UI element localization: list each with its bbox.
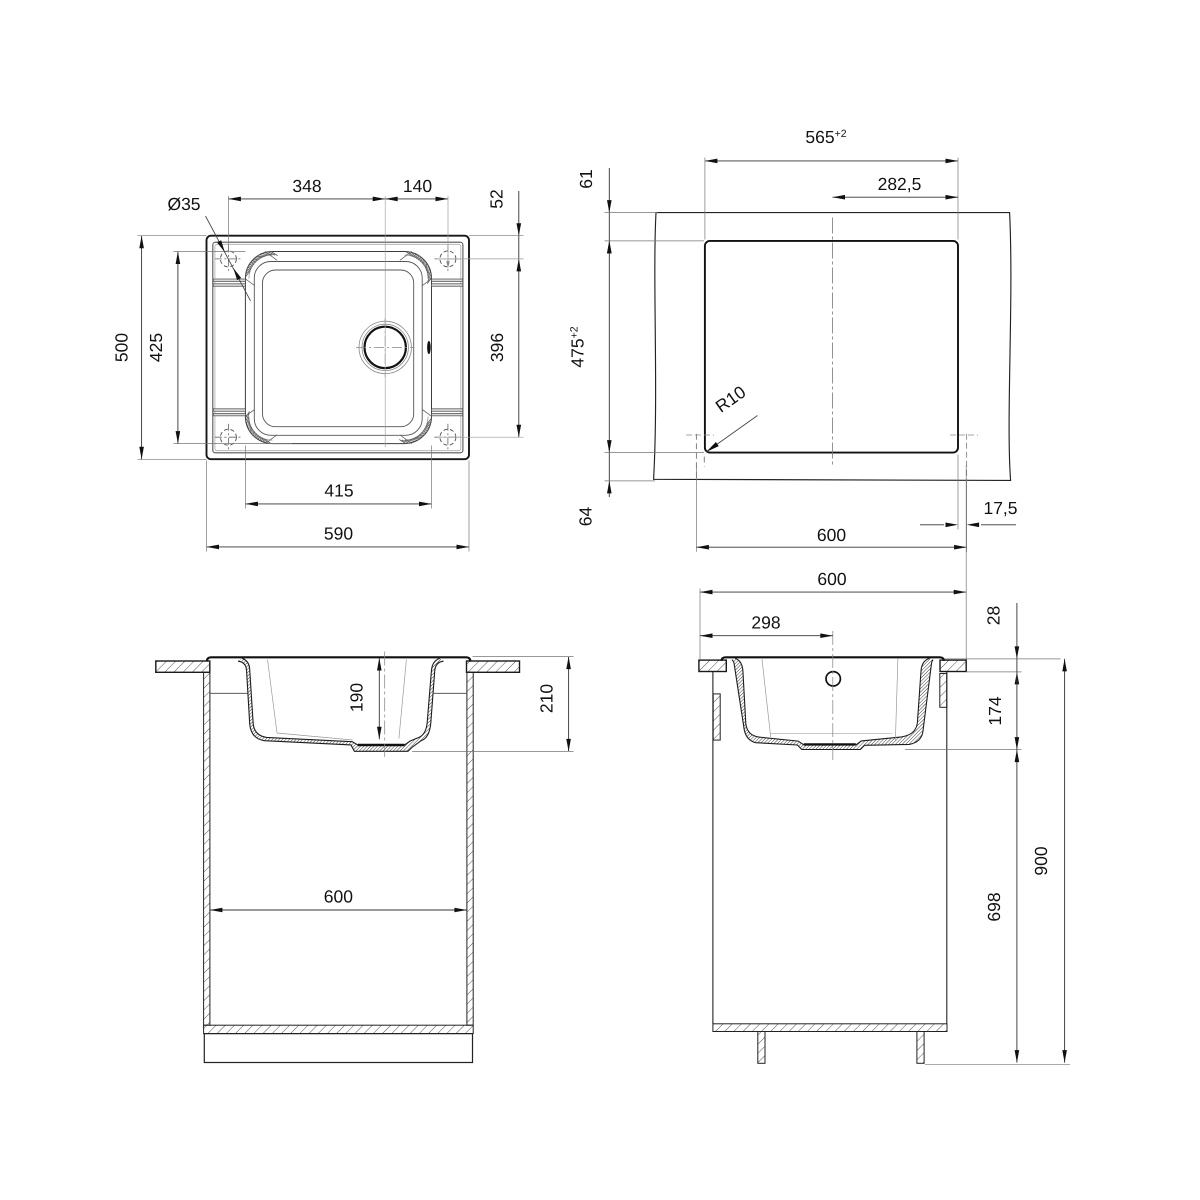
svg-text:425: 425 bbox=[146, 333, 166, 362]
svg-text:348: 348 bbox=[292, 176, 321, 196]
svg-text:698: 698 bbox=[984, 892, 1004, 921]
svg-text:600: 600 bbox=[324, 887, 353, 907]
svg-text:174: 174 bbox=[985, 696, 1005, 725]
svg-text:28: 28 bbox=[984, 606, 1004, 625]
svg-text:298: 298 bbox=[751, 613, 780, 633]
svg-text:590: 590 bbox=[324, 524, 353, 544]
svg-text:61: 61 bbox=[576, 169, 596, 188]
svg-text:Ø35: Ø35 bbox=[167, 194, 200, 214]
svg-text:64: 64 bbox=[576, 507, 596, 527]
svg-text:190: 190 bbox=[347, 683, 367, 712]
svg-text:282,5: 282,5 bbox=[878, 174, 922, 194]
svg-text:600: 600 bbox=[817, 569, 846, 589]
svg-text:396: 396 bbox=[487, 333, 507, 362]
svg-text:17,5: 17,5 bbox=[983, 498, 1017, 518]
svg-text:52: 52 bbox=[487, 189, 507, 208]
svg-text:415: 415 bbox=[324, 481, 353, 501]
svg-text:900: 900 bbox=[1031, 846, 1051, 875]
svg-text:140: 140 bbox=[403, 176, 432, 196]
svg-text:600: 600 bbox=[817, 525, 846, 545]
svg-text:500: 500 bbox=[112, 333, 132, 362]
svg-text:210: 210 bbox=[537, 684, 557, 713]
